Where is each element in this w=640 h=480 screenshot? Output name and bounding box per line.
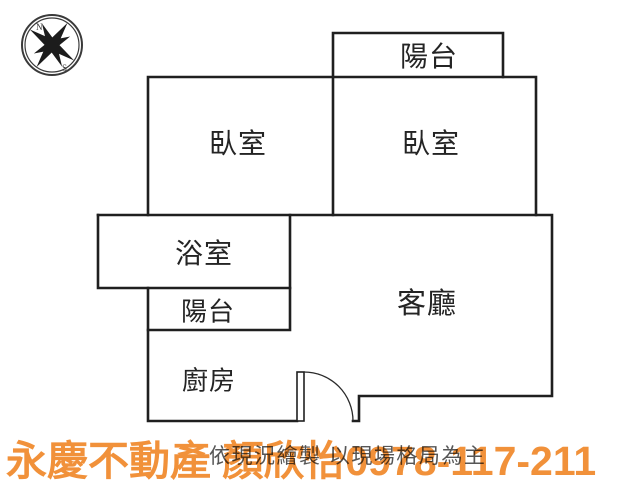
room-label-kitchen: 廚房 xyxy=(182,361,236,398)
room-label-bedroom-left: 臥室 xyxy=(209,122,267,162)
compass-north-label: N xyxy=(36,22,43,32)
room-label-balcony-top: 陽台 xyxy=(400,35,458,75)
door-icon xyxy=(297,372,353,421)
room-label-bathroom: 浴室 xyxy=(175,232,233,272)
floorplan-drawing: N S xyxy=(0,0,640,480)
room-label-bedroom-right: 臥室 xyxy=(402,122,460,162)
wall-living-room xyxy=(98,215,552,421)
walls xyxy=(98,33,552,421)
room-label-balcony-lower: 陽台 xyxy=(181,292,235,329)
compass-south-label: S xyxy=(62,63,67,73)
door-leaf xyxy=(297,372,304,421)
room-label-living-room: 客廳 xyxy=(397,280,457,322)
disclaimer-text: 依現況繪製 以現場格局為主 xyxy=(209,440,486,470)
compass-icon: N S xyxy=(14,7,89,82)
door-swing-arc xyxy=(304,372,353,421)
wall-bedrooms xyxy=(148,77,536,215)
floorplan-image: N S 陽台 臥室 臥室 浴室 陽台 廚房 客廳 永慶不動產 顏欣怡0978-1… xyxy=(0,0,640,480)
